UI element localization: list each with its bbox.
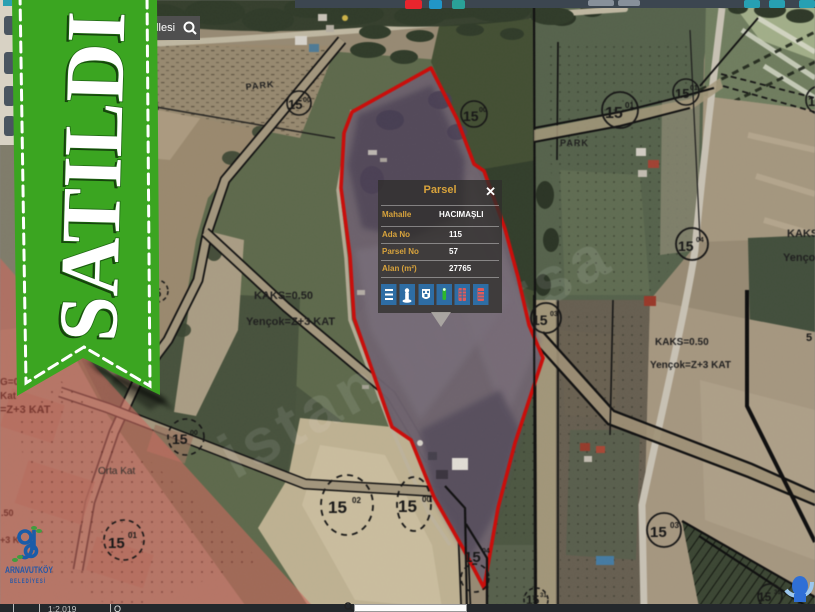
svg-text:ARNAVUTKÖY: ARNAVUTKÖY <box>5 565 53 575</box>
svg-text:BELEDİYESİ: BELEDİYESİ <box>10 578 46 585</box>
svg-text:SATILDI: SATILDI <box>42 10 144 342</box>
